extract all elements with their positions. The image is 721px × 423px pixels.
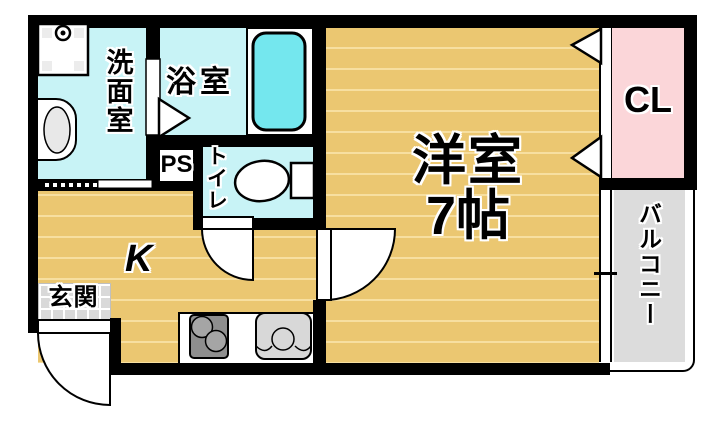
wall-bath-left-upper: [146, 28, 160, 59]
kitchen-label: K: [125, 240, 152, 279]
closet-label: CL: [612, 82, 684, 119]
wall-main-vertical-upper: [313, 28, 326, 229]
balcony-sliding-window: [599, 190, 612, 362]
western-room-size: 7帖: [368, 189, 568, 244]
kitchen-counter: [178, 312, 315, 365]
toilet-label: トイレ: [205, 145, 226, 211]
pipe-space-label: PS: [160, 153, 192, 177]
closet-door-strip: [599, 28, 612, 178]
wall-top: [28, 15, 697, 28]
wall-right: [684, 15, 697, 190]
wall-bottom: [110, 363, 610, 375]
wall-bath-bottom: [146, 135, 326, 147]
entrance-label: 玄関: [38, 286, 109, 310]
washroom-label: 洗面室: [103, 48, 131, 135]
wall-entry-connector: [110, 318, 121, 375]
balcony-label: バルコニー: [636, 202, 659, 327]
western-room-name: 洋室: [368, 134, 568, 189]
pipe-space-box: PS: [157, 147, 196, 184]
wall-closet-bottom: [599, 178, 697, 190]
floor-plan: PS: [0, 0, 721, 423]
bathroom-label: 浴室: [166, 68, 234, 99]
window-tick: [594, 272, 617, 275]
wall-main-vertical-lower: [313, 300, 326, 363]
western-room-label: 洋室 7帖: [368, 134, 568, 244]
wall-toilet-bottom: [193, 218, 326, 230]
wall-left: [28, 15, 38, 333]
